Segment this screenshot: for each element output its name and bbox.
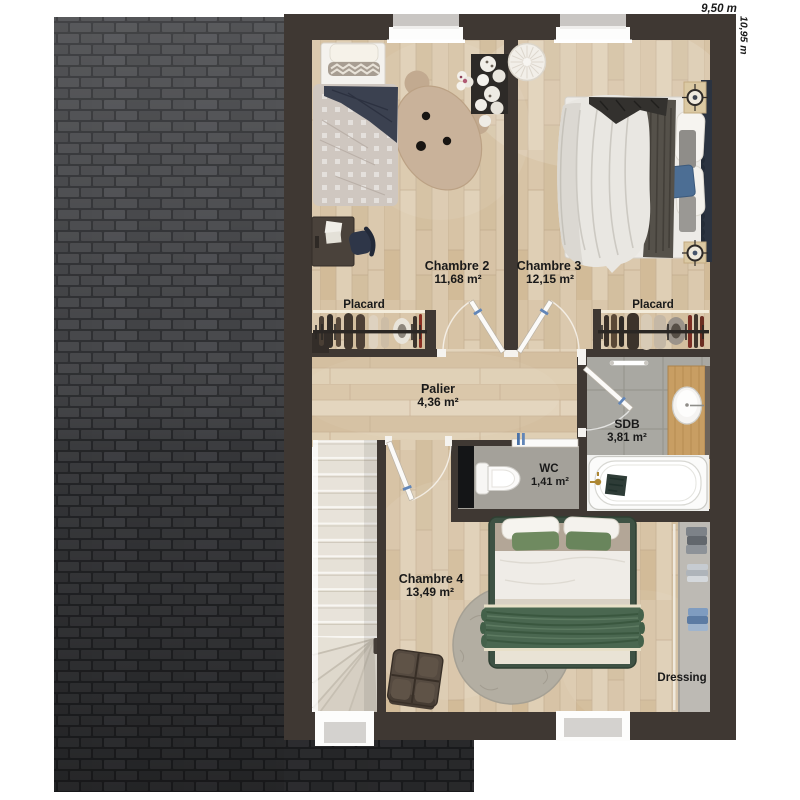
svg-text:1,41 m²: 1,41 m² — [531, 476, 569, 488]
svg-text:SDB: SDB — [614, 417, 640, 431]
svg-text:Chambre 4: Chambre 4 — [399, 572, 464, 586]
svg-text:12,15 m²: 12,15 m² — [526, 272, 574, 286]
svg-text:WC: WC — [539, 463, 558, 475]
svg-text:9,50 m: 9,50 m — [701, 3, 737, 15]
svg-text:Palier: Palier — [421, 382, 455, 396]
svg-text:Placard: Placard — [632, 299, 674, 311]
svg-text:3,81 m²: 3,81 m² — [607, 432, 647, 444]
svg-text:Chambre 2: Chambre 2 — [425, 259, 490, 273]
svg-text:Dressing: Dressing — [657, 672, 706, 684]
svg-text:11,68 m²: 11,68 m² — [434, 272, 481, 286]
svg-text:10,95 m: 10,95 m — [738, 16, 750, 55]
svg-text:Chambre 3: Chambre 3 — [517, 259, 582, 273]
svg-text:4,36 m²: 4,36 m² — [417, 395, 458, 409]
svg-text:13,49 m²: 13,49 m² — [406, 585, 454, 599]
svg-text:Placard: Placard — [343, 299, 385, 311]
